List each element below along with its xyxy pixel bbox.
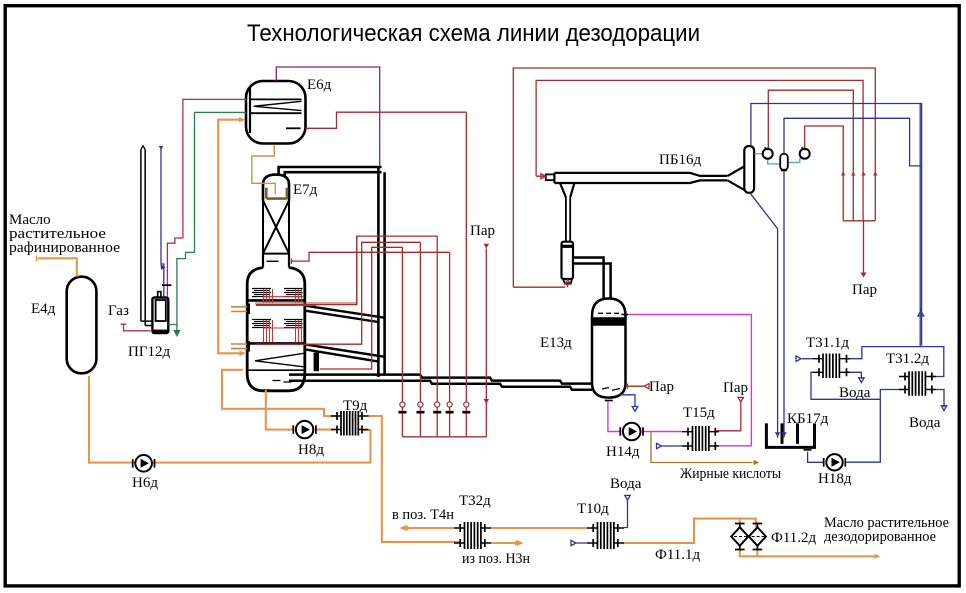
svg-text:Н8д: Н8д xyxy=(298,442,324,458)
svg-text:Пар: Пар xyxy=(723,380,748,396)
svg-text:КБ17д: КБ17д xyxy=(787,411,829,427)
svg-text:Пар: Пар xyxy=(649,379,674,395)
svg-text:Пар: Пар xyxy=(470,223,495,239)
svg-text:Вода: Вода xyxy=(839,385,871,401)
svg-text:рафинированное: рафинированное xyxy=(9,240,120,256)
svg-text:в поз. Т4н: в поз. Т4н xyxy=(392,507,454,523)
svg-text:Т31.1д: Т31.1д xyxy=(806,335,849,351)
svg-text:Е6д: Е6д xyxy=(307,77,332,93)
svg-text:Т9д: Т9д xyxy=(343,398,368,414)
svg-text:Н14д: Н14д xyxy=(606,444,640,460)
svg-text:Е7д: Е7д xyxy=(293,182,318,198)
svg-text:Е4д: Е4д xyxy=(31,301,56,317)
svg-text:Пар: Пар xyxy=(852,282,877,298)
svg-text:Н6д: Н6д xyxy=(132,475,158,491)
svg-text:ПГ12д: ПГ12д xyxy=(128,344,171,360)
svg-text:Ф11.2д: Ф11.2д xyxy=(771,530,817,546)
svg-text:Газ: Газ xyxy=(108,303,129,319)
svg-text:Ф11.1д: Ф11.1д xyxy=(655,547,701,563)
svg-text:Вода: Вода xyxy=(610,476,642,492)
svg-text:Т10д: Т10д xyxy=(577,501,609,517)
svg-text:Жирные кислоты: Жирные кислоты xyxy=(680,466,781,482)
svg-text:Е13д: Е13д xyxy=(540,335,572,351)
svg-text:дезодорированное: дезодорированное xyxy=(824,529,936,545)
svg-text:из поз. Н3н: из поз. Н3н xyxy=(462,551,530,567)
svg-text:Т32д: Т32д xyxy=(459,493,491,509)
svg-text:Вода: Вода xyxy=(909,415,941,431)
svg-text:Т31.2д: Т31.2д xyxy=(886,351,929,367)
svg-text:ПБ16д: ПБ16д xyxy=(659,152,701,168)
svg-text:Н18д: Н18д xyxy=(818,471,852,487)
svg-text:Технологическая схема линии де: Технологическая схема линии дезодорации xyxy=(247,20,700,47)
svg-text:Т15д: Т15д xyxy=(683,405,715,421)
